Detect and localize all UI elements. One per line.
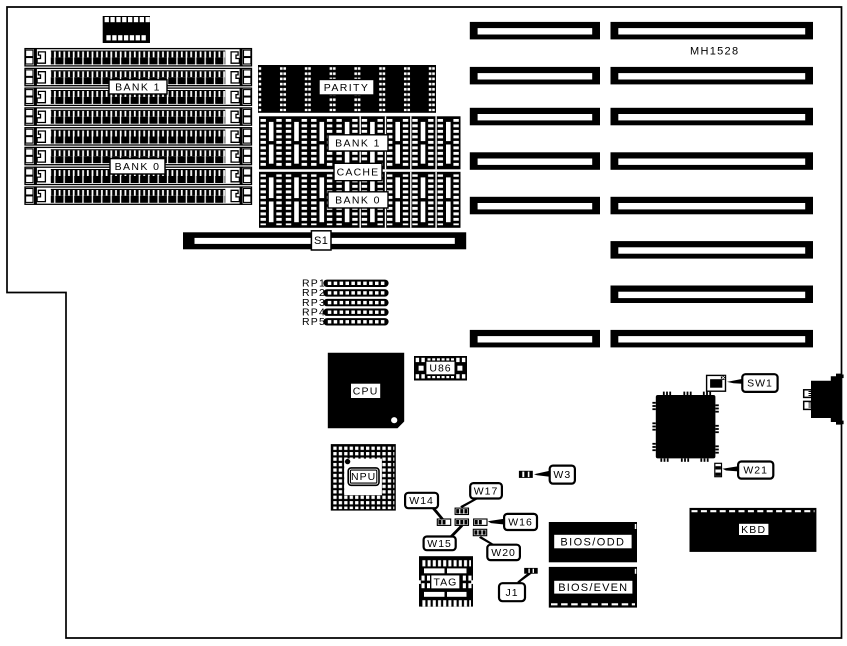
svg-text:PARITY: PARITY [324,82,370,94]
svg-text:BANK 0: BANK 0 [115,161,161,173]
svg-text:BANK 1: BANK 1 [115,82,161,94]
svg-text:TAG: TAG [433,577,457,589]
svg-text:MH1528: MH1528 [690,46,739,58]
svg-text:CACHE: CACHE [337,167,380,179]
svg-text:W15: W15 [427,538,452,550]
svg-text:BIOS/EVEN: BIOS/EVEN [558,582,628,594]
svg-text:W3: W3 [553,469,571,481]
svg-text:W17: W17 [474,485,499,497]
svg-text:U86: U86 [429,363,451,375]
svg-text:S1: S1 [314,235,328,247]
svg-text:KBD: KBD [741,524,766,536]
svg-text:RP5: RP5 [302,316,326,328]
svg-text:W16: W16 [508,517,533,529]
svg-text:SW1: SW1 [747,378,773,390]
svg-text:BIOS/ODD: BIOS/ODD [560,536,625,548]
svg-text:CPU: CPU [353,385,379,397]
svg-text:W20: W20 [491,547,516,559]
svg-text:BANK 0: BANK 0 [335,195,381,207]
svg-text:J1: J1 [505,587,518,599]
svg-text:NPU: NPU [351,471,376,483]
svg-text:BANK 1: BANK 1 [335,138,381,150]
svg-text:W21: W21 [743,465,768,477]
svg-text:W14: W14 [409,495,434,507]
